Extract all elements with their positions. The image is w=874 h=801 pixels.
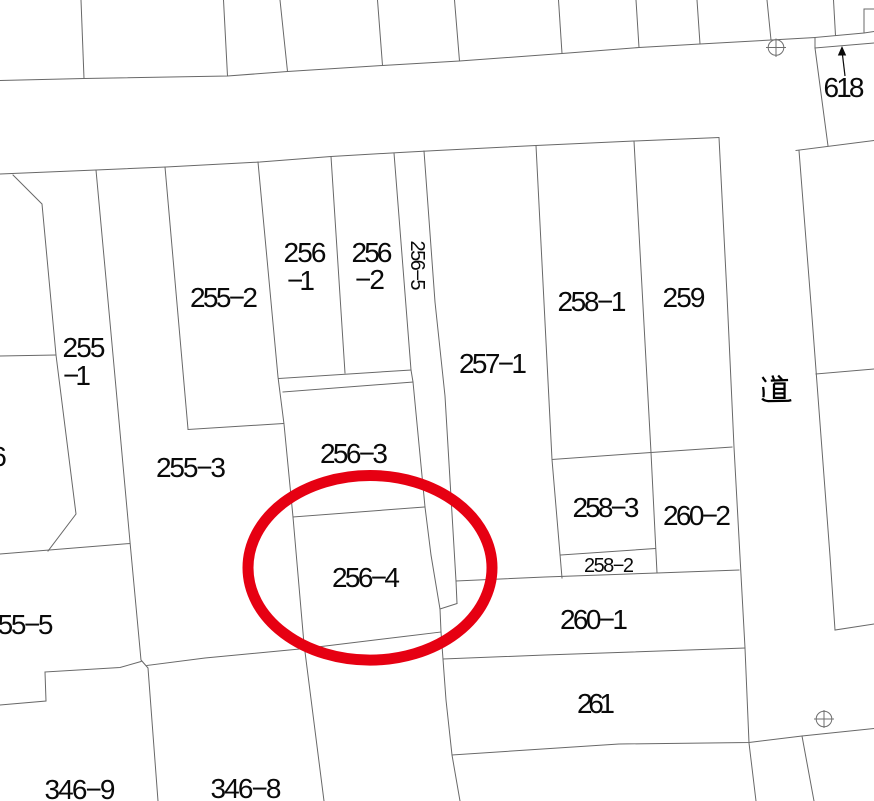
- svg-text:260−2: 260−2: [663, 500, 731, 531]
- svg-text:258−1: 258−1: [558, 286, 627, 317]
- svg-text:256: 256: [284, 237, 327, 268]
- svg-text:618: 618: [824, 72, 865, 103]
- svg-text:255−5: 255−5: [0, 609, 54, 640]
- svg-text:255−2: 255−2: [190, 282, 258, 313]
- svg-text:256−5: 256−5: [406, 241, 428, 291]
- svg-text:258−2: 258−2: [584, 555, 634, 577]
- svg-text:346−9: 346−9: [45, 774, 116, 801]
- svg-text:257−1: 257−1: [459, 348, 527, 379]
- svg-text:256−4: 256−4: [332, 562, 400, 593]
- svg-text:−1: −1: [63, 360, 91, 391]
- svg-text:261: 261: [577, 688, 615, 719]
- svg-text:−1: −1: [287, 265, 315, 296]
- svg-text:6: 6: [0, 441, 7, 472]
- svg-text:255: 255: [63, 332, 106, 363]
- svg-text:258−3: 258−3: [573, 492, 640, 523]
- svg-text:346−8: 346−8: [211, 773, 282, 801]
- svg-text:255−3: 255−3: [156, 452, 226, 483]
- svg-text:256−3: 256−3: [320, 438, 388, 469]
- svg-text:260−1: 260−1: [560, 604, 628, 635]
- svg-text:−2: −2: [355, 264, 385, 295]
- svg-text:259: 259: [663, 282, 706, 313]
